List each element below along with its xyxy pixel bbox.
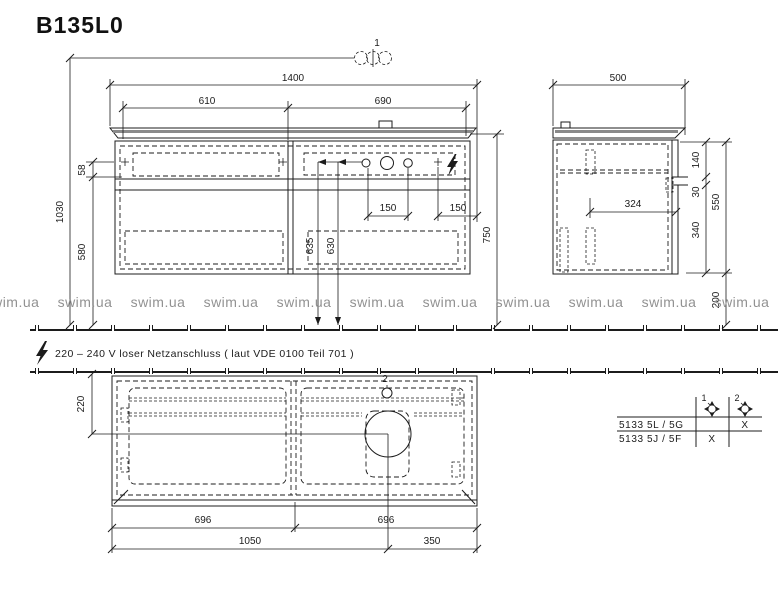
drawing-sheet: B135L0 xyxy=(0,0,780,600)
wall-hatch-upper xyxy=(30,325,778,331)
overflow-hole xyxy=(382,388,392,398)
dim-drain-height-right: 630 xyxy=(326,237,337,254)
dim-notch: 30 xyxy=(691,186,702,198)
dim-tap-height: 1030 xyxy=(55,200,66,223)
watermark-text: swim.ua xyxy=(569,294,624,310)
hole-position-2-icon xyxy=(737,401,753,417)
dim-height: 550 xyxy=(711,193,722,210)
dim-wall-offset: 220 xyxy=(76,395,87,412)
dim-tap-offset: 58 xyxy=(77,164,88,176)
table-col1-num: 1 xyxy=(701,393,706,403)
side-view-dimensions: 500 140 30 340 550 200 324 xyxy=(549,73,732,329)
wall-hatch-lower xyxy=(30,368,778,374)
dim-top-inset: 140 xyxy=(691,151,702,168)
watermark-text: swim.ua xyxy=(277,294,332,310)
hole-circles xyxy=(362,157,412,170)
table-row2-hole1: X xyxy=(708,434,715,445)
dim-left-width: 610 xyxy=(199,96,216,107)
dim-body-height: 580 xyxy=(77,243,88,260)
lightning-bolt-icon xyxy=(36,341,48,365)
dim-depth: 500 xyxy=(610,73,627,84)
dim-drain-height-left: 635 xyxy=(305,237,316,254)
table-row1-label: 5133 5L / 5G xyxy=(619,420,684,431)
table-row1-hole2: X xyxy=(741,420,748,431)
hole-position-1-icon xyxy=(704,401,720,417)
dim-drain-right: 350 xyxy=(424,536,441,547)
dim-drain-x: 1050 xyxy=(239,536,262,547)
watermark-text: swim.ua xyxy=(715,294,770,310)
dim-rail-span: 340 xyxy=(691,221,702,238)
tap-hole-options-icon xyxy=(355,49,392,67)
lightning-bolt-icon xyxy=(447,154,458,176)
watermark-text: swim.ua xyxy=(642,294,697,310)
front-view-dimensions: 1400 610 690 1030 58 580 150 150 xyxy=(55,54,504,329)
side-view xyxy=(553,122,688,274)
dim-hole-pitch-right: 150 xyxy=(450,203,467,214)
callout-1-label: 1 xyxy=(374,38,380,49)
dim-total-width: 1400 xyxy=(282,73,305,84)
plan-view: 2 xyxy=(92,374,477,549)
table-row2-label: 5133 5J / 5F xyxy=(619,434,682,445)
technical-drawing: 1 1400 610 690 1030 58 580 xyxy=(0,0,780,600)
watermark-text: swim.ua xyxy=(0,294,39,310)
variant-table: 1 2 5133 5L / 5G X 5133 5J / 5F X xyxy=(617,393,762,447)
dim-inner-depth: 324 xyxy=(625,199,642,210)
watermark-text: swim.ua xyxy=(58,294,113,310)
table-col2-num: 2 xyxy=(734,393,739,403)
watermark-text: swim.ua xyxy=(204,294,259,310)
watermark-text: swim.ua xyxy=(496,294,551,310)
electrical-note-text: 220 – 240 V loser Netzanschluss ( laut V… xyxy=(55,348,354,360)
dim-hole-pitch-left: 150 xyxy=(380,203,397,214)
dim-right-width: 690 xyxy=(375,96,392,107)
watermark-text: swim.ua xyxy=(350,294,405,310)
watermark-text: swim.ua xyxy=(131,294,186,310)
callout-2-label: 2 xyxy=(382,374,388,385)
dim-top-height: 750 xyxy=(482,226,493,243)
front-view: 1 xyxy=(70,38,476,274)
dim-left-half: 696 xyxy=(195,515,212,526)
dim-right-half: 696 xyxy=(378,515,395,526)
watermark-text: swim.ua xyxy=(423,294,478,310)
watermarks: swim.ua swim.ua swim.ua swim.ua swim.ua … xyxy=(0,294,769,310)
plan-view-dimensions: 220 696 696 1050 350 xyxy=(76,370,481,553)
electrical-note: 220 – 240 V loser Netzanschluss ( laut V… xyxy=(36,341,354,365)
